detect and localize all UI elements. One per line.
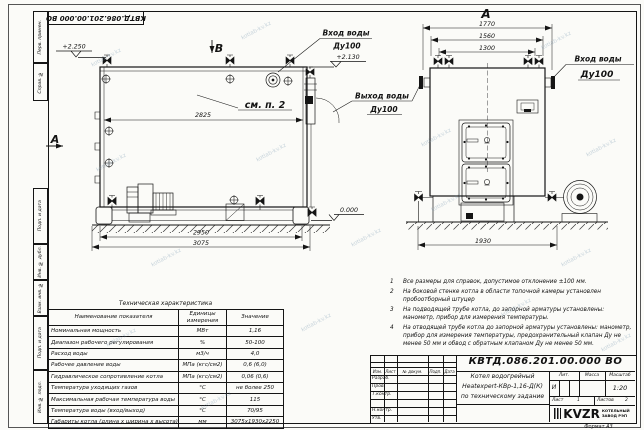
pedestal bbox=[433, 196, 514, 222]
inlet-top-dn: Ду100 bbox=[332, 42, 360, 51]
row-name: Температура уходящих газов bbox=[49, 382, 179, 393]
note-item: 4На отводящей трубе котла до запорной ар… bbox=[388, 324, 637, 349]
notes-list: 1Все размеры для справок, допустимое отк… bbox=[388, 278, 637, 350]
row-unit: МПа (кгс/см2) bbox=[179, 371, 227, 382]
row-value: 0,6 (6,0) bbox=[227, 360, 284, 371]
row-name: Гидравлическое сопротивление котла bbox=[49, 371, 179, 382]
scale-value: 1:20 bbox=[605, 384, 635, 392]
row-prov: Пров. bbox=[372, 384, 385, 389]
note-text: На подводящей трубе котла, до запорной а… bbox=[403, 306, 637, 323]
title-block: КВТД.086.201.00.000 ВО Котел водогрейный… bbox=[370, 355, 637, 424]
dim-1930: 1930 bbox=[475, 238, 491, 245]
sheets-label: Листов bbox=[597, 398, 614, 403]
row-unit: МВт bbox=[179, 326, 227, 337]
row-value: 3075х1930х2250 bbox=[227, 417, 284, 428]
col-list: Лист bbox=[384, 369, 397, 374]
sight-port bbox=[517, 100, 538, 113]
scale-header: Масштаб bbox=[605, 373, 635, 378]
water-flanges bbox=[419, 76, 555, 89]
note-number: 3 bbox=[388, 306, 403, 323]
row-value: 4,0 bbox=[227, 348, 284, 359]
tech-table-header-row: Наименование показателя Единицы измерени… bbox=[49, 310, 284, 326]
inlet-right-label: Вход воды bbox=[574, 55, 621, 64]
logo-subtext-line2: ЗАВОД РЭП bbox=[602, 414, 630, 419]
row-unit: °С bbox=[179, 382, 227, 393]
dim-3075: 3075 bbox=[193, 240, 209, 247]
doc-number: КВТД.086.201.00.000 ВО bbox=[456, 356, 635, 371]
note-text: На отводящей трубе котла до запорной арм… bbox=[403, 324, 637, 349]
logo-subtext: КОТЕЛЬНЫЙ ЗАВОД РЭП bbox=[602, 409, 630, 418]
note-item: 1Все размеры для справок, допустимое отк… bbox=[388, 278, 637, 286]
drawing-sheet: КВТД.086.201.00.000 ВО Перв. примен. Спр… bbox=[0, 0, 644, 430]
row-name: Температура воды (вход/выход) bbox=[49, 405, 179, 416]
table-row: Габариты котла (длина х ширина х высота)… bbox=[49, 417, 284, 428]
level-mark-inlet bbox=[309, 62, 366, 68]
note-text: Все размеры для справок, допустимое откл… bbox=[403, 278, 637, 286]
ground-hatch-left bbox=[92, 225, 330, 233]
product-name-line2: Heatexpert-КВр-1,16-Д(К) bbox=[456, 382, 549, 392]
front-top-valves bbox=[434, 56, 543, 69]
tech-characteristics: Техническая характеристика Наименование … bbox=[48, 300, 283, 429]
tech-col-value: Значение bbox=[227, 310, 284, 326]
note-number: 2 bbox=[388, 288, 403, 305]
callout-see-note-2: см. п. 2 bbox=[245, 100, 286, 111]
inlet-top-label: Вход воды bbox=[322, 29, 369, 38]
col-data: Дата bbox=[443, 369, 456, 374]
table-row: Температура уходящих газов°Сне более 250 bbox=[49, 382, 284, 393]
lit-header: Лит. bbox=[549, 373, 579, 378]
row-value: 1,16 bbox=[227, 326, 284, 337]
level-inlet-text: +2.130 bbox=[336, 54, 359, 61]
outlet-elbow bbox=[304, 67, 339, 207]
row-name: Диапазон рабочего регулирования bbox=[49, 337, 179, 348]
table-row: Расход водым3/ч4,0 bbox=[49, 348, 284, 359]
row-razrab: Разраб. bbox=[372, 376, 390, 381]
row-value: 115 bbox=[227, 394, 284, 405]
note-text: На боковой стенке котла в области топочн… bbox=[403, 288, 637, 305]
row-value: 0,06 (0,6) bbox=[227, 371, 284, 382]
col-docnum: № докум. bbox=[397, 369, 428, 374]
product-name-line3: по техническому задание bbox=[456, 392, 549, 402]
outlet-label: Выход воды bbox=[355, 92, 409, 101]
product-name: Котел водогрейный Heatexpert-КВр-1,16-Д(… bbox=[456, 372, 549, 402]
dim-2950: 2950 bbox=[193, 230, 209, 237]
format-label: Формат А3 bbox=[560, 424, 637, 430]
manufacturer-logo: KVZR КОТЕЛЬНЫЙ ЗАВОД РЭП bbox=[549, 405, 635, 422]
door2-bolts bbox=[463, 165, 508, 200]
row-utv: Утв. bbox=[372, 416, 381, 421]
row-unit: м3/ч bbox=[179, 348, 227, 359]
sheets-value: 2 bbox=[625, 398, 628, 403]
row-name: Рабочее давление воды bbox=[49, 360, 179, 371]
row-name: Номинальная мощность bbox=[49, 326, 179, 337]
dim-1300: 1300 bbox=[479, 45, 495, 52]
tech-col-unit: Единицы измерения bbox=[179, 310, 227, 326]
lit-value: И bbox=[549, 384, 559, 391]
inlet-right-dn: Ду100 bbox=[580, 70, 614, 80]
row-name: Максимальная рабочая температура воды bbox=[49, 394, 179, 405]
logo-bars bbox=[554, 408, 561, 419]
row-unit: °С bbox=[179, 394, 227, 405]
note-number: 1 bbox=[388, 278, 403, 286]
pipe-fittings bbox=[101, 74, 293, 205]
view-a-marker: А bbox=[50, 133, 60, 146]
level-top-text: +2.250 bbox=[62, 44, 85, 51]
row-value: 50-100 bbox=[227, 337, 284, 348]
top-valves bbox=[103, 55, 294, 67]
tech-table: Наименование показателя Единицы измерени… bbox=[48, 309, 284, 429]
dim-1770: 1770 bbox=[479, 21, 495, 28]
logo-text: KVZR bbox=[563, 407, 600, 421]
outlet-dn: Ду100 bbox=[369, 105, 397, 114]
view-b-marker: В bbox=[215, 42, 223, 55]
sheet-value: 1 bbox=[577, 398, 580, 403]
level-ground-text: 0.000 bbox=[340, 207, 358, 214]
dim-2825: 2825 bbox=[195, 112, 211, 119]
row-name: Расход воды bbox=[49, 348, 179, 359]
sheet-label: Лист bbox=[552, 398, 563, 403]
dim-1560: 1560 bbox=[479, 33, 495, 40]
furnace-doors bbox=[459, 120, 513, 205]
product-name-line1: Котел водогрейный bbox=[456, 372, 549, 382]
note-item: 3На подводящей трубе котла, до запорной … bbox=[388, 306, 637, 323]
level-mark-ground bbox=[311, 215, 364, 221]
row-value: 70/95 bbox=[227, 405, 284, 416]
note-item: 2На боковой стенке котла в области топоч… bbox=[388, 288, 637, 305]
row-value: не более 250 bbox=[227, 382, 284, 393]
table-row: Температура воды (вход/выход)°С70/95 bbox=[49, 405, 284, 416]
table-row: Гидравлическое сопротивление котлаМПа (к… bbox=[49, 371, 284, 382]
note-number: 4 bbox=[388, 324, 403, 349]
row-nkontr: Н.контр. bbox=[372, 408, 392, 413]
boiler-front-view bbox=[406, 56, 608, 230]
row-unit: МПа (кгс/см2) bbox=[179, 360, 227, 371]
row-unit: % bbox=[179, 337, 227, 348]
table-row: Диапазон рабочего регулирования%50-100 bbox=[49, 337, 284, 348]
tech-col-name: Наименование показателя bbox=[49, 310, 179, 326]
tech-table-title: Техническая характеристика bbox=[48, 300, 283, 307]
col-izm: Изм. bbox=[371, 369, 384, 374]
boiler-side-view bbox=[92, 55, 339, 233]
view-a-title: А bbox=[480, 7, 490, 21]
ground-hatch-right bbox=[406, 222, 608, 230]
burner-blower bbox=[127, 184, 176, 222]
level-mark-top bbox=[56, 51, 106, 58]
row-unit: °С bbox=[179, 405, 227, 416]
mass-header: Масса bbox=[579, 373, 605, 378]
drawing-labels: 2825 2950 3075 +2.250 +2.130 0.000 В А с… bbox=[50, 7, 622, 247]
row-tkontr: Т.контр. bbox=[372, 392, 392, 397]
front-blower bbox=[545, 181, 597, 223]
row-unit: мм bbox=[179, 417, 227, 428]
table-row: Номинальная мощностьМВт1,16 bbox=[49, 326, 284, 337]
table-row: Рабочее давление водыМПа (кгс/см2)0,6 (6… bbox=[49, 360, 284, 371]
round-port bbox=[266, 73, 280, 87]
table-row: Максимальная рабочая температура воды°С1… bbox=[49, 394, 284, 405]
row-name: Габариты котла (длина х ширина х высота) bbox=[49, 417, 179, 428]
col-podp: Подп. bbox=[428, 369, 443, 374]
